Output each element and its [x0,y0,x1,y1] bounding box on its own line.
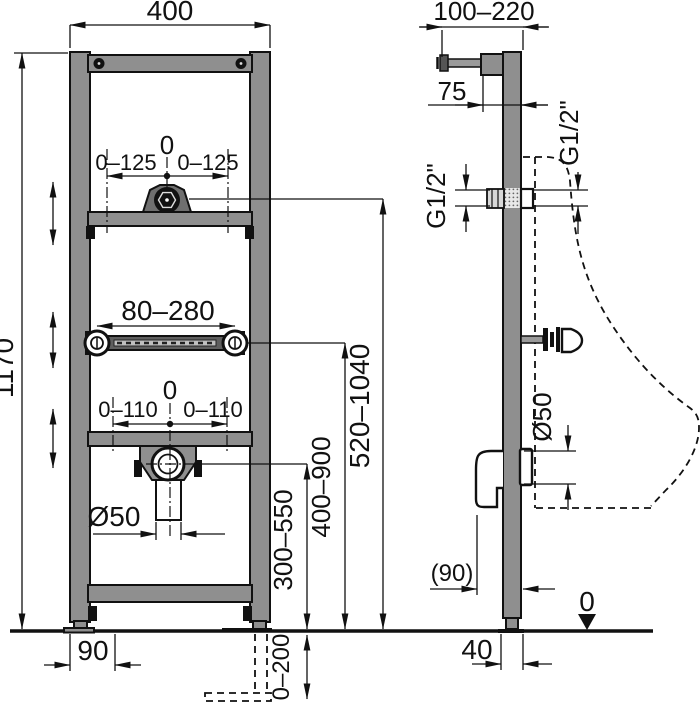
right-foot-plate [222,628,272,633]
dim-bracket-depth: 75 [438,76,467,106]
drain-pipe [156,480,181,520]
dim-rail-height: 400–900 [306,436,336,537]
dim-floor-datum: 0 [579,586,595,617]
bracket-rod [447,59,481,67]
wall-pass-through [505,188,521,208]
extended-leg-dashed [205,634,271,701]
technical-drawing-urinal-frame: 400 1170 0 0–125 0–125 80–280 0 0–110 0–… [0,0,700,704]
flush-pipe-bracket [143,185,191,213]
front-outlet-fitting [521,189,533,208]
wall-bracket [438,54,504,75]
dim-wall-distance: 100–220 [433,0,534,26]
drawing-canvas: 400 1170 0 0–125 0–125 80–280 0 0–110 0–… [0,0,700,704]
urinal-fixing-bolt [521,327,582,352]
dim-flush-offset-left: 0–125 [95,150,156,175]
side-column [503,52,521,618]
rail-mount-left [85,331,109,355]
drain-elbow [476,451,503,507]
right-foot [253,621,266,629]
dim-flush-height: 520–1040 [344,344,375,469]
bracket-body [481,54,503,75]
left-foot-plate [64,628,94,633]
floor-datum-triangle [578,614,596,630]
front-right-post [250,52,270,622]
dim-leg-extension: 0–200 [268,634,295,701]
dim-profile-depth: 40 [461,634,492,665]
dim-outlet-wall-offset: (90) [431,560,474,587]
dim-drain-diameter: Ø50 [88,501,141,532]
wall-anchor [440,55,448,71]
urinal-outline-dashed [523,157,699,508]
front-bottom-rail [88,585,252,602]
mounting-rail-assembly [85,331,247,355]
front-top-rail [88,55,252,72]
dim-flush-offset-right: 0–125 [177,150,238,175]
dim-drain-height: 300–550 [268,489,298,590]
outlet-socket [520,449,532,485]
rail-mount-right [223,331,247,355]
dim-outlet-diameter: Ø50 [527,392,557,441]
side-foot-plate [498,629,524,633]
dim-flush-center: 0 [160,130,174,160]
right-foot-bolt [243,606,252,621]
dim-frame-width: 400 [147,0,194,26]
dim-drain-offset-right: 0–110 [183,397,243,422]
dim-water-thread-front: G1/2" [554,100,584,166]
dim-drain-offset-left: 0–110 [98,397,158,422]
hex-fitting [487,189,504,208]
water-supply-fitting [487,188,533,208]
bolt-cone-cap [562,329,582,352]
left-foot-bolt [88,606,97,621]
dim-rail-span: 80–280 [121,295,214,326]
dim-frame-height: 1170 [0,338,19,398]
dim-foot-offset: 90 [77,635,108,666]
dim-drain-center: 0 [163,375,177,405]
dim-water-thread-rear: G1/2" [421,163,451,229]
side-foot [506,618,518,629]
